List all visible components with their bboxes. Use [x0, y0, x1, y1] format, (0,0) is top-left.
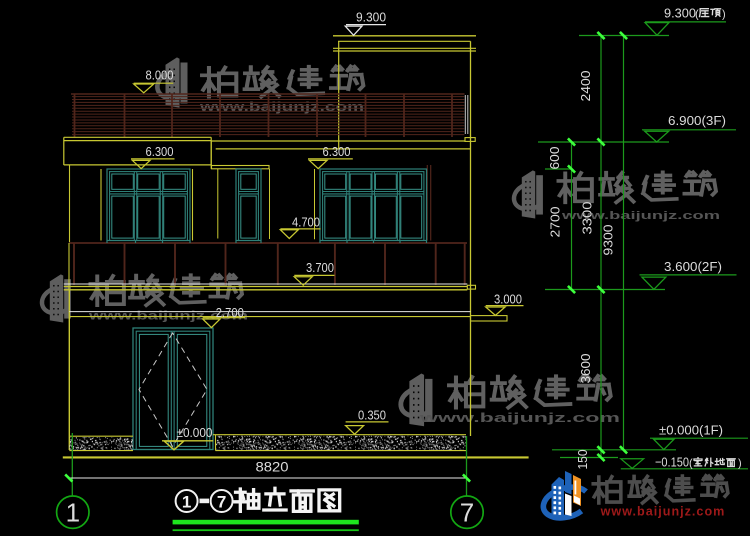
svg-text:7: 7 — [217, 493, 226, 512]
svg-text:): ) — [722, 9, 726, 21]
svg-text:0.350: 0.350 — [358, 408, 386, 423]
svg-text:3300: 3300 — [580, 202, 595, 235]
svg-text:1: 1 — [182, 493, 191, 512]
svg-text:): ) — [738, 458, 742, 470]
svg-text:3.000: 3.000 — [494, 292, 522, 307]
svg-text:2400: 2400 — [578, 71, 593, 102]
svg-text:6.300: 6.300 — [146, 144, 174, 159]
svg-text:8820: 8820 — [256, 460, 289, 475]
svg-text:1: 1 — [66, 498, 80, 528]
svg-text:(: ( — [695, 9, 699, 21]
svg-text:3600: 3600 — [578, 354, 593, 384]
svg-text:150: 150 — [575, 450, 590, 470]
svg-text:7: 7 — [460, 498, 474, 528]
svg-text:2700: 2700 — [548, 207, 563, 238]
svg-text:8.000: 8.000 — [146, 68, 174, 83]
svg-text:6.900(3F): 6.900(3F) — [668, 113, 726, 128]
svg-text:9300: 9300 — [601, 225, 616, 256]
svg-text:3.600(2F): 3.600(2F) — [664, 259, 722, 274]
svg-text:600: 600 — [547, 147, 562, 170]
svg-text:9.300: 9.300 — [664, 6, 696, 21]
svg-text:−0.150: −0.150 — [655, 455, 689, 470]
svg-text:4.700: 4.700 — [292, 215, 320, 230]
svg-text:6.300: 6.300 — [323, 144, 351, 159]
svg-text:(: ( — [689, 458, 693, 470]
svg-text:www.baijunjz.com: www.baijunjz.com — [418, 411, 620, 425]
svg-text:9.300: 9.300 — [356, 10, 386, 25]
svg-text:±0.000(1F): ±0.000(1F) — [659, 423, 723, 438]
svg-text:±0.000: ±0.000 — [177, 425, 213, 440]
svg-text:www.baijunjz.com: www.baijunjz.com — [600, 505, 726, 519]
svg-text:3.700: 3.700 — [306, 260, 334, 275]
